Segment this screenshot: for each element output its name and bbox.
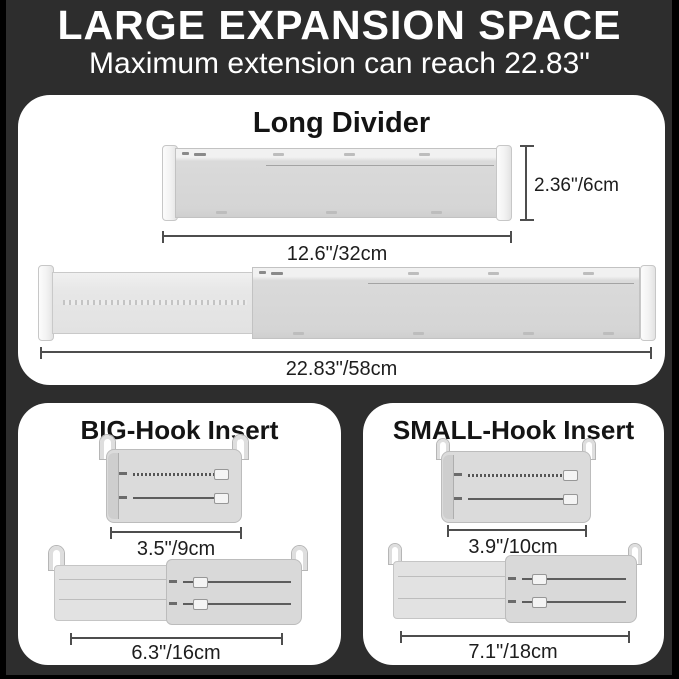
insert-body	[441, 451, 591, 523]
hero-subtitle: Maximum extension can reach 22.83"	[0, 47, 679, 81]
big-hook-panel: BIG-Hook Insert 3.5"/9cm	[18, 403, 341, 665]
divider-extended-graphic	[38, 265, 656, 341]
notch-mark	[419, 153, 430, 156]
notch-mark	[273, 153, 284, 156]
height-measure-line	[525, 145, 527, 221]
insert-line	[59, 579, 167, 580]
small-hook-title: SMALL-Hook Insert	[363, 415, 664, 446]
insert-main-section	[505, 555, 637, 623]
collapsed-measure-label: 12.6"/32cm	[162, 243, 512, 266]
adjust-slot	[133, 473, 227, 476]
adjust-slot	[183, 603, 291, 605]
insert-rail	[443, 455, 454, 519]
notch-mark	[488, 272, 499, 275]
notch-mark	[344, 153, 355, 156]
notch-mark	[259, 271, 266, 274]
notch-mark	[408, 272, 419, 275]
small-collapsed-measure-line	[447, 529, 587, 531]
adjust-slot	[468, 498, 576, 500]
big-hook-title: BIG-Hook Insert	[18, 415, 341, 446]
insert-rail	[108, 453, 119, 519]
insert-main-section	[166, 559, 302, 625]
notch-mark	[603, 332, 614, 335]
insert-line	[59, 599, 167, 600]
hero-title: LARGE EXPANSION SPACE	[0, 2, 679, 49]
small-extended-measure-line	[400, 635, 630, 637]
extended-measure-label: 22.83"/58cm	[18, 358, 665, 381]
small-insert-extended-graphic	[393, 555, 637, 625]
adjust-slot	[522, 601, 626, 603]
insert-body	[106, 449, 242, 523]
notch-mark	[271, 272, 283, 275]
notch-mark	[293, 332, 304, 335]
small-insert-collapsed-graphic	[441, 451, 591, 523]
height-measure-label: 2.36"/6cm	[534, 175, 619, 197]
long-divider-panel: Long Divider 2.36"/6cm 12.6"/32cm	[18, 95, 665, 385]
divider-end-cap	[496, 145, 512, 221]
insert-slide-section	[393, 561, 509, 619]
divider-slot-line	[266, 165, 494, 166]
big-insert-collapsed-graphic	[106, 449, 242, 523]
extended-measure-line	[40, 351, 652, 353]
small-hook-panel: SMALL-Hook Insert 3.9"/10cm	[363, 403, 664, 665]
collapsed-measure-line	[162, 235, 512, 237]
insert-line	[398, 576, 506, 577]
notch-mark	[194, 153, 206, 156]
notch-mark	[413, 332, 424, 335]
divider-body	[175, 148, 499, 218]
big-collapsed-measure-line	[110, 531, 242, 533]
big-collapsed-measure-label: 3.5"/9cm	[76, 538, 276, 561]
adjust-slot	[183, 581, 291, 583]
adjust-slot	[468, 474, 576, 477]
adjust-slot	[133, 497, 227, 499]
ratchet-track	[63, 300, 247, 305]
divider-collapsed-graphic	[162, 145, 512, 221]
product-infographic: LARGE EXPANSION SPACE Maximum extension …	[0, 0, 679, 679]
divider-end-cap	[640, 265, 656, 341]
long-divider-title: Long Divider	[18, 107, 665, 140]
notch-mark	[523, 332, 534, 335]
notch-mark	[182, 152, 189, 155]
insert-line	[398, 598, 506, 599]
big-insert-extended-graphic	[54, 559, 302, 627]
divider-inner-slide	[52, 272, 254, 334]
big-extended-measure-label: 6.3"/16cm	[76, 642, 276, 665]
adjust-slot	[522, 578, 626, 580]
insert-slide-section	[54, 565, 170, 621]
notch-mark	[431, 211, 442, 214]
divider-body	[252, 267, 640, 339]
divider-slot-line	[368, 283, 634, 284]
big-extended-measure-line	[70, 637, 283, 639]
notch-mark	[326, 211, 337, 214]
notch-mark	[583, 272, 594, 275]
notch-mark	[216, 211, 227, 214]
small-extended-measure-label: 7.1"/18cm	[413, 641, 613, 664]
